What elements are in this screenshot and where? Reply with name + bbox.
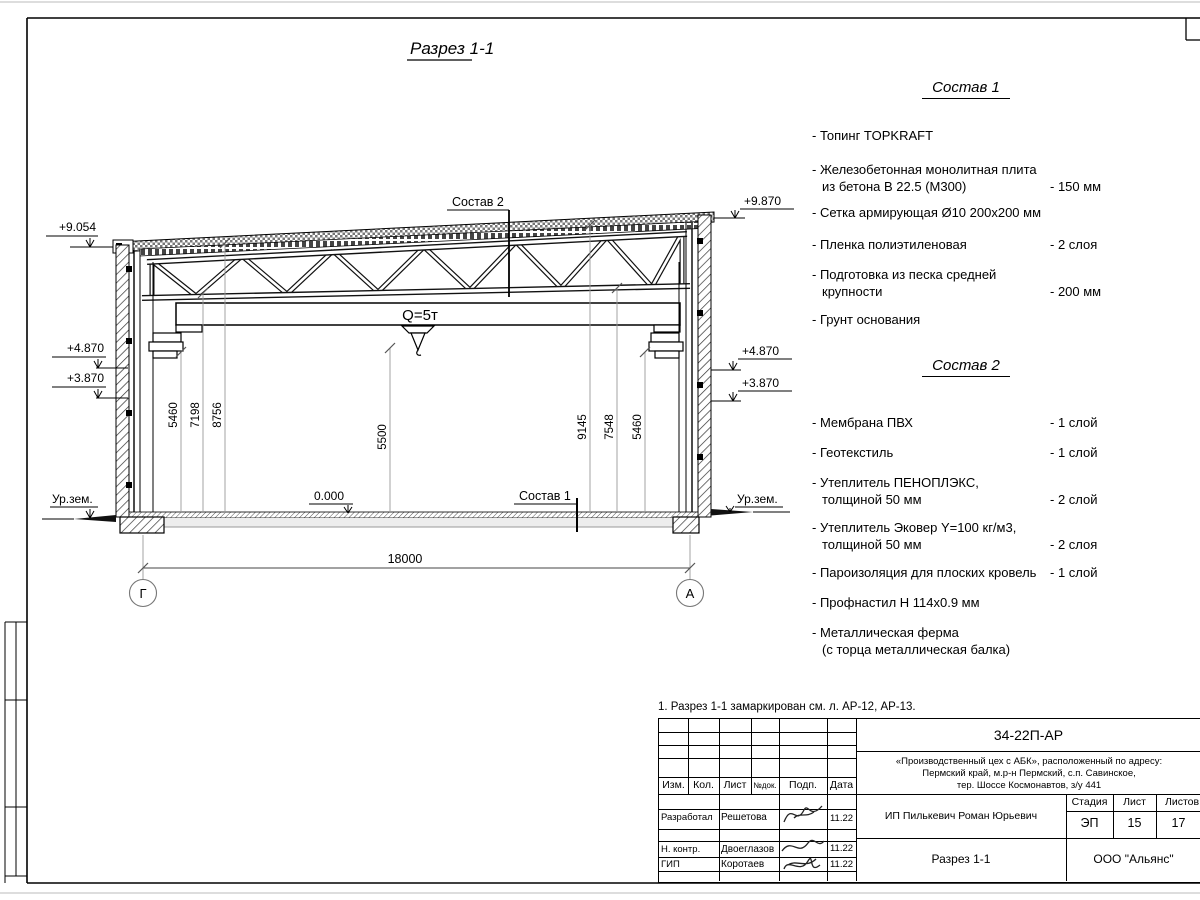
dim-label: 5460 [168, 402, 180, 428]
span-dimension: 18000 Г А [130, 535, 704, 607]
ground-level-label: Ур.зем. [737, 492, 778, 506]
item-text: - Профнастил Н 114х0.9 мм [812, 594, 1062, 611]
tb-line [856, 838, 1200, 839]
tb-header-data: Дата [827, 779, 856, 791]
list-item: - Грунт основания [812, 311, 1062, 328]
view-title: Разрез 1-1 [407, 39, 494, 60]
item-text: - Геотекстиль [812, 444, 1062, 461]
tb-company: ООО "Альянс" [1066, 852, 1200, 866]
tb-header-kol: Кол. [688, 779, 719, 791]
tb-date: 11.22 [827, 843, 856, 854]
list-item: - Мембрана ПВХ [812, 414, 1062, 431]
left-margin-boxes [5, 622, 27, 883]
tb-line [659, 871, 856, 872]
dim-label: 7548 [604, 414, 616, 440]
list-item: - Сетка армирующая Ø10 200х200 мм [812, 204, 1062, 221]
item-text: - Железобетонная монолитная плита [812, 161, 1062, 178]
item-text: - Утеплитель ПЕНОПЛЭКС, [812, 474, 1062, 491]
list-item: - Профнастил Н 114х0.9 мм [812, 594, 1062, 611]
tb-name: Коротаев [721, 859, 764, 870]
tb-project-line: тер. Шоссе Космонавтов, з/у 441 [859, 780, 1199, 791]
item-value: - 2 слой [1050, 491, 1098, 508]
crane-girder: Q=5т [176, 303, 680, 355]
tb-project-line: Пермский край, м.р-н Пермский, с.п. Сави… [859, 768, 1199, 779]
item-text: - Подготовка из песка средней [812, 266, 1062, 283]
item-text: (с торца металлическая балка) [812, 641, 1062, 658]
item-text: толщиной 50 мм [812, 536, 1062, 553]
item-text: - Утеплитель Эковер Y=100 кг/м3, [812, 519, 1062, 536]
crane-capacity-label: Q=5т [402, 307, 438, 324]
elevation-label: +4.870 [742, 344, 779, 358]
tb-header-izm: Изм. [659, 779, 688, 791]
dim-label: 9145 [577, 414, 589, 440]
tb-line [659, 777, 856, 778]
ground-level-label: Ур.зем. [52, 492, 93, 506]
item-value: - 1 слой [1050, 414, 1098, 431]
item-value: - 2 слоя [1050, 236, 1097, 253]
list-item: - Железобетонная монолитная плита из бет… [812, 161, 1062, 195]
tb-date: 11.22 [827, 859, 856, 870]
elevation-label: +3.870 [67, 371, 104, 385]
drawing-sheet: Разрез 1-1 [0, 0, 1200, 900]
tb-sheets-label: Листов [1156, 796, 1200, 808]
item-text: - Топинг TOPKRAFT [812, 127, 1062, 144]
crane-hook-icon [417, 350, 421, 355]
list-item: - Утеплитель ПЕНОПЛЭКС, толщиной 50 мм [812, 474, 1062, 508]
item-text: - Грунт основания [812, 311, 1062, 328]
dim-label: 5500 [377, 424, 389, 450]
tb-name: Двоеглазов [721, 844, 774, 855]
sostav2-title: Состав 2 [922, 357, 1010, 377]
tb-client: ИП Пилькевич Роман Юрьевич [856, 810, 1066, 822]
callout-label: Состав 1 [519, 489, 571, 503]
tb-sheet-label: Лист [1113, 796, 1156, 808]
tb-name: Решетова [721, 812, 767, 823]
item-value: - 150 мм [1050, 178, 1101, 195]
item-value: - 1 слой [1050, 444, 1098, 461]
tb-stage-value: ЭП [1066, 816, 1113, 830]
item-text: - Сетка армирующая Ø10 200х200 мм [812, 204, 1062, 221]
elevation-label: +3.870 [742, 376, 779, 390]
sheet-note: 1. Разрез 1-1 замаркирован см. л. АР-12,… [658, 701, 916, 713]
tb-date: 11.22 [827, 813, 856, 824]
item-text: - Металлическая ферма [812, 624, 1062, 641]
floor-slab [42, 509, 790, 533]
tb-line [659, 794, 856, 795]
tb-line [659, 732, 856, 733]
signature-icon [778, 835, 826, 879]
elevation-label: +9.054 [59, 220, 96, 234]
item-text: крупности [812, 283, 1062, 300]
item-text: толщиной 50 мм [812, 491, 1062, 508]
tb-stage-label: Стадия [1066, 796, 1113, 808]
list-item: - Утеплитель Эковер Y=100 кг/м3, толщино… [812, 519, 1062, 553]
floor-level-label: 0.000 [314, 489, 344, 503]
item-value: - 200 мм [1050, 283, 1101, 300]
signature-icon [780, 798, 826, 830]
item-text: - Мембрана ПВХ [812, 414, 1062, 431]
item-text: - Пароизоляция для плоских кровель [812, 564, 1062, 581]
list-item: - Геотекстиль [812, 444, 1062, 461]
tb-line [659, 745, 856, 746]
list-item: - Топинг TOPKRAFT [812, 127, 1062, 144]
tb-role: Разработал [661, 812, 713, 823]
tb-line [659, 841, 856, 842]
dim-label: 8756 [212, 402, 224, 428]
tb-project-line: «Производственный цех с АБК», расположен… [859, 756, 1199, 767]
tb-line [659, 857, 856, 858]
tb-role: ГИП [661, 859, 680, 870]
item-text: из бетона В 22.5 (М300) [812, 178, 1062, 195]
list-item: - Подготовка из песка средней крупности [812, 266, 1062, 300]
tb-drawing-title: Разрез 1-1 [856, 852, 1066, 866]
elevation-label: +4.870 [67, 341, 104, 355]
item-value: - 1 слой [1050, 564, 1098, 581]
tb-sheet-value: 15 [1113, 816, 1156, 830]
title-block: Изм. Кол. Лист №док. Подп. Дата Разработ… [658, 718, 1200, 883]
list-item: - Пленка полиэтиленовая [812, 236, 1062, 253]
item-text: - Пленка полиэтиленовая [812, 236, 1062, 253]
list-item: - Металлическая ферма (с торца металличе… [812, 624, 1062, 658]
tb-sheets-value: 17 [1156, 816, 1200, 830]
tb-line [659, 809, 856, 810]
grid-axis-label: А [686, 586, 695, 601]
dim-label: 7198 [190, 402, 202, 428]
tb-line [856, 751, 1200, 752]
callout-label: Состав 2 [452, 195, 504, 209]
sostav1-title: Состав 1 [922, 79, 1010, 99]
tb-line [856, 794, 1200, 795]
grid-axis-label: Г [139, 586, 146, 601]
tb-header-list: Лист [719, 779, 751, 791]
tb-doc-code: 34-22П-АР [856, 727, 1200, 743]
item-value: - 2 слоя [1050, 536, 1097, 553]
dim-label: 5460 [632, 414, 644, 440]
corner-stamp-box [1186, 18, 1200, 40]
tb-line [659, 758, 856, 759]
list-item: - Пароизоляция для плоских кровель [812, 564, 1062, 581]
tb-header-ndok: №док. [751, 781, 779, 790]
elevation-label: +9.870 [744, 194, 781, 208]
tb-line [1066, 811, 1200, 812]
dim-label: 18000 [388, 552, 423, 566]
tb-header-podp: Подп. [779, 779, 827, 791]
tb-role: Н. контр. [661, 844, 700, 855]
tb-line [659, 829, 856, 830]
view-title-text: Разрез 1-1 [410, 39, 494, 58]
